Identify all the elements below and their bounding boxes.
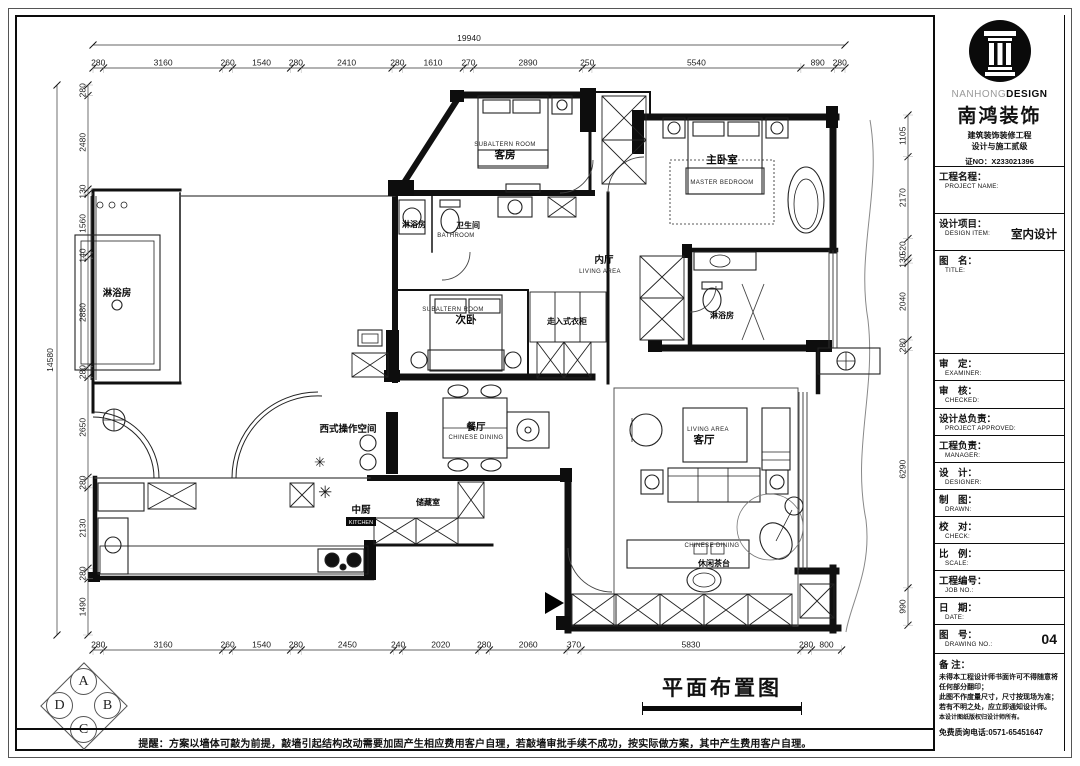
svg-text:✳: ✳ — [318, 483, 332, 502]
master-room-label-en: MASTER BEDROOM — [690, 180, 753, 186]
dimension-label: 2130 — [78, 518, 88, 537]
field-examiner: 审 定：EXAMINER: — [935, 354, 1064, 381]
dimension-label: 890 — [811, 58, 825, 68]
title-block: NANHONGDESIGN 南鸿装饰 建筑装饰装修工程设计与施工贰级 证NO：X… — [933, 15, 1064, 751]
bottom-strip: 提醒：方案以墙体可敲为前提，敲墙引起结构改动需要加固产生相应费用客户自理，若敲墙… — [17, 728, 933, 752]
dimension-label: 280 — [390, 58, 404, 68]
reminder-note: 提醒：方案以墙体可敲为前提，敲墙引起结构改动需要加固产生相应费用客户自理，若敲墙… — [138, 739, 811, 750]
plan-title: 平面布置图 — [642, 672, 802, 711]
field-manager: 工程负责：MANAGER: — [935, 436, 1064, 463]
dimension-label: 2410 — [337, 58, 356, 68]
dimension-label: 3160 — [154, 640, 173, 650]
field-title: 图 名：TITLE: — [935, 251, 1064, 354]
terrace-curve — [846, 120, 873, 632]
dimension-label: 5540 — [687, 58, 706, 68]
dimension-label: 1560 — [78, 214, 88, 233]
dimension-label: 2480 — [78, 133, 88, 152]
dimension-label: 2170 — [898, 188, 908, 207]
field-checked: 审 核：CHECKED: — [935, 381, 1064, 409]
tea-table-label-en: CHINESE DINING — [685, 543, 740, 549]
field-design-item: 设计项目：DESIGN ITEM:室内设计 — [935, 214, 1064, 251]
dimension-label: 140 — [78, 248, 88, 262]
field-drawn: 制 图：DRAWN: — [935, 490, 1064, 517]
compass-node-a: A — [70, 668, 97, 695]
dimension-label: 280 — [91, 58, 105, 68]
field-drawing-no: 图 号：DRAWING NO.:04 — [935, 625, 1064, 654]
dimension-label: 6290 — [898, 459, 908, 478]
entrance-arrow-icon — [545, 592, 564, 614]
field-check: 校 对：CHECK: — [935, 517, 1064, 544]
dimension-label: 2060 — [519, 640, 538, 650]
svg-text:✳: ✳ — [314, 454, 326, 470]
field-date: 日 期：DATE: — [935, 598, 1064, 625]
column-logo-icon — [969, 20, 1031, 82]
dimension-label: 2890 — [519, 58, 538, 68]
shower-mid-label: 淋浴房 — [402, 219, 426, 229]
tea-table-label: 休闲茶台 — [697, 558, 730, 568]
second-room-label: 次卧 — [456, 313, 477, 326]
dining-label-en: CHINESE DINING — [449, 435, 504, 441]
dimension-label: 280 — [289, 640, 303, 650]
compass-node-d: D — [46, 692, 73, 719]
dimension-label: 280 — [78, 475, 88, 489]
field-job-no: 工程编号：JOB NO.: — [935, 571, 1064, 598]
dimension-label: 270 — [461, 58, 475, 68]
shower-right-label: 淋浴房 — [710, 310, 734, 320]
dimension-label: 370 — [567, 640, 581, 650]
dining-label: 餐厅 — [465, 421, 486, 433]
west-kitchen-label: 西式操作空间 — [319, 423, 376, 435]
walls — [93, 92, 838, 630]
plan-title-underline — [642, 706, 802, 711]
dimension-label: 280 — [78, 566, 88, 580]
dimension-label: 2020 — [431, 640, 450, 650]
floor-plan: ✳ ✳ SUBALTERN ROOM 客房 主卧室 MASTER BEDROOM… — [0, 0, 933, 766]
dimension-label: 130 — [78, 184, 88, 198]
dimension-label: 990 — [898, 599, 908, 613]
drawing-sheet: ✳ ✳ SUBALTERN ROOM 客房 主卧室 MASTER BEDROOM… — [0, 0, 1080, 766]
dimension-label: 280 — [833, 58, 847, 68]
dimension-label: 280 — [289, 58, 303, 68]
dimension-label: 280 — [78, 365, 88, 379]
living-label-en: LIVING AREA — [687, 427, 729, 433]
dimension-label: 520 — [898, 241, 908, 255]
master-room-label: 主卧室 — [706, 153, 738, 166]
inner-hall-label: 内厅 — [594, 254, 614, 266]
inner-hall-label-en: LIVING AREA — [579, 269, 621, 275]
dimension-label: 3160 — [154, 58, 173, 68]
shower-left-label: 淋浴房 — [103, 287, 132, 299]
dimension-label: 1540 — [252, 640, 271, 650]
storage-label: 储藏室 — [415, 497, 440, 507]
brand-line: NANHONGDESIGN — [935, 89, 1064, 100]
dimension-label: 1490 — [78, 597, 88, 616]
dimension-label: 2450 — [338, 640, 357, 650]
bathroom-label: 卫生间 — [456, 220, 480, 230]
field-project-approved: 设计总负责：PROJECT APPROVED: — [935, 409, 1064, 436]
second-room-label-en: SUBALTERN ROOM — [422, 307, 484, 313]
field-designer: 设 计：DESIGNER: — [935, 463, 1064, 490]
cert-lines: 建筑装饰装修工程设计与施工贰级 — [935, 131, 1064, 153]
kitchen-label: 中厨 — [351, 504, 371, 516]
dimension-label: 1610 — [424, 58, 443, 68]
walkin-closet-label: 走入式衣柜 — [546, 316, 587, 326]
dimension-label: 250 — [580, 58, 594, 68]
notes-section: 备 注： 未得本工程设计师书面许可不得随意将任何部分翻印； 此图不作度量尺寸，尺… — [935, 654, 1064, 751]
dimension-label: 2880 — [78, 303, 88, 322]
curved-partitions — [93, 392, 322, 478]
dimension-label: 260 — [221, 58, 235, 68]
logo-section: NANHONGDESIGN 南鸿装饰 建筑装饰装修工程设计与施工贰级 证NO：X… — [935, 15, 1064, 167]
dimension-label: 280 — [78, 83, 88, 97]
dimension-label: 14580 — [45, 348, 55, 372]
field-scale: 比 例：SCALE: — [935, 544, 1064, 571]
dimension-label: 800 — [819, 640, 833, 650]
bathroom-label-en: BATHROOM — [437, 233, 474, 239]
dimension-label: 19940 — [457, 33, 481, 43]
guest-room-label: 客房 — [494, 148, 516, 161]
phone-number: 免费质询电话:0571-65451647 — [939, 727, 1060, 738]
living-label: 客厅 — [693, 433, 715, 446]
field-project-name: 工程名程：PROJECT NAME: — [935, 167, 1064, 214]
dimension-label: 280 — [799, 640, 813, 650]
dimension-label: 260 — [221, 640, 235, 650]
kitchen-label-en: KITCHEN — [349, 520, 373, 526]
dimension-label: 280 — [91, 640, 105, 650]
compass-node-b: B — [94, 692, 121, 719]
cert-no: 证NO：X233021396 — [935, 156, 1064, 167]
dimension-label: 240 — [391, 640, 405, 650]
plan-title-text: 平面布置图 — [642, 672, 802, 702]
dimension-label: 130 — [898, 253, 908, 267]
dimension-label: 2650 — [78, 418, 88, 437]
dimension-label: 280 — [898, 338, 908, 352]
dimension-label: 280 — [477, 640, 491, 650]
dimension-label: 1105 — [898, 126, 908, 145]
dimension-label: 2040 — [898, 292, 908, 311]
dimension-label: 5830 — [681, 640, 700, 650]
dimension-label: 1540 — [252, 58, 271, 68]
guest-room-label-en: SUBALTERN ROOM — [474, 142, 536, 148]
company-name: 南鸿装饰 — [935, 101, 1064, 128]
